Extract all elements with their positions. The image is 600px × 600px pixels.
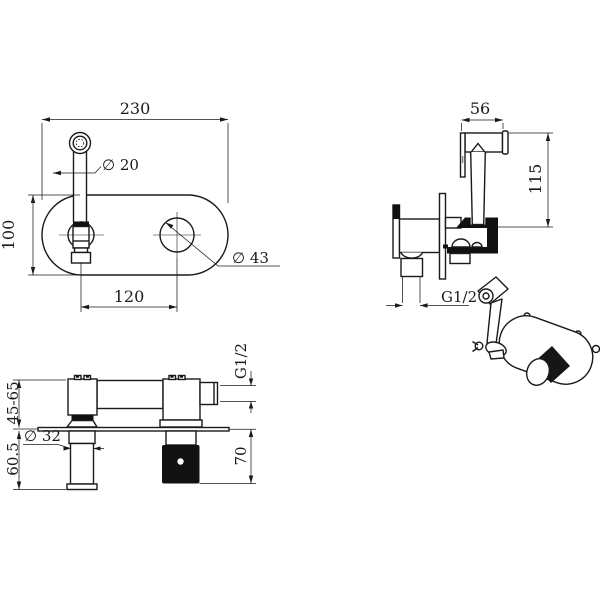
- drawing-svg: 230 100 ∅ 20 ∅ 43: [0, 0, 600, 600]
- dim-label-120: 120: [114, 287, 145, 306]
- dim-head-length: 56: [462, 99, 504, 131]
- dim-spout-tube-diameter: ∅ 20: [53, 156, 139, 175]
- dim-label-115: 115: [526, 164, 545, 195]
- wall-plate-edge: [38, 428, 229, 432]
- outlet-nipple: [200, 383, 218, 405]
- dim-label-60-5: 60.5: [4, 442, 22, 475]
- perspective-sprayer: [473, 277, 509, 359]
- dim-label-g12-outlet: G1/2: [232, 343, 250, 379]
- dim-label-d20: ∅ 20: [102, 156, 139, 174]
- spout-aerator-circle: [70, 133, 91, 154]
- spout-below-plate: [67, 431, 97, 490]
- dim-label-45-65: 45-65: [4, 381, 22, 424]
- plate-edge-on: [440, 194, 446, 280]
- perspective-view: [473, 277, 600, 392]
- dim-label-56: 56: [470, 99, 490, 118]
- dim-inlet-thread: G1/2: [386, 277, 477, 308]
- technical-drawing-canvas: 230 100 ∅ 20 ∅ 43: [0, 0, 600, 600]
- sprayer-handle: [471, 152, 486, 225]
- side-view: 56 115 G1/2: [386, 99, 553, 308]
- dim-handle-projection: 70: [200, 429, 257, 483]
- dim-label-70: 70: [232, 446, 250, 465]
- inwall-body-bar: [97, 381, 163, 409]
- front-view: 230 100 ∅ 20 ∅ 43: [0, 99, 280, 312]
- dim-label-100: 100: [0, 220, 18, 251]
- installation-view: 45-65 60.5 ∅ 32 G1/2: [4, 343, 256, 490]
- spout-tube: [74, 151, 87, 223]
- plate-screw-bump: [593, 346, 600, 353]
- dim-label-230: 230: [120, 99, 151, 118]
- dim-label-d43: ∅ 43: [232, 249, 269, 267]
- handle-below-plate: [162, 431, 200, 484]
- valve-block: [160, 376, 218, 428]
- dim-plate-width: 230: [42, 99, 228, 203]
- spout-block: [67, 376, 97, 428]
- dim-label-d32: ∅ 32: [24, 427, 61, 445]
- dim-outlet-thread: G1/2: [220, 343, 256, 413]
- dim-wall-depth-range: 45-65: [4, 380, 66, 429]
- dim-label-g12-inlet: G1/2: [441, 288, 477, 306]
